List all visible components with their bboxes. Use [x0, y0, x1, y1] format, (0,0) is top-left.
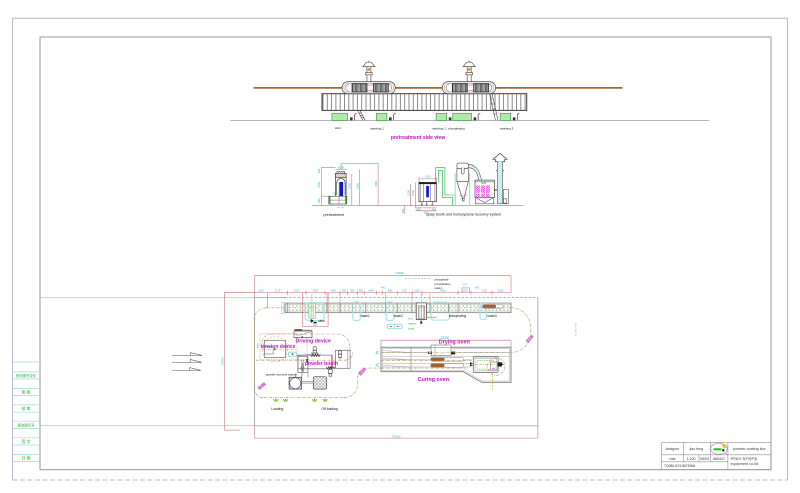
svg-text:2200: 2200 [498, 289, 504, 292]
svg-text:skim: skim [335, 126, 342, 130]
svg-text:400: 400 [313, 324, 318, 327]
svg-text:450: 450 [475, 286, 480, 289]
svg-text:900: 900 [359, 289, 364, 292]
svg-text:2175: 2175 [275, 289, 281, 292]
svg-text:powder coating line: powder coating line [733, 447, 766, 451]
svg-text:wash3: wash3 [487, 314, 496, 318]
svg-text:1250: 1250 [414, 289, 420, 292]
svg-text:24050: 24050 [395, 271, 404, 275]
svg-text:equipment co.ltd: equipment co.ltd [731, 462, 759, 466]
svg-text:1500: 1500 [411, 190, 415, 196]
svg-text:water: water [408, 322, 416, 326]
svg-text:washing 2: washing 2 [432, 126, 446, 130]
svg-text:400: 400 [401, 208, 405, 213]
svg-text:powder recovery system: powder recovery system [266, 373, 298, 377]
svg-text:spray booth and monocyclone re: spray booth and monocyclone recovery sys… [426, 212, 501, 216]
svg-text:900: 900 [388, 289, 393, 292]
svg-text:300: 300 [317, 168, 321, 173]
svg-text:xinyue spraying: xinyue spraying [731, 457, 757, 461]
svg-text:washing 1: washing 1 [370, 126, 384, 130]
svg-text:pretreatment: pretreatment [324, 213, 344, 217]
svg-text:3000: 3000 [313, 289, 319, 292]
svg-text:1:100: 1:100 [687, 457, 696, 461]
svg-text:tension device: tension device [261, 344, 296, 350]
svg-text:wash1: wash1 [361, 314, 370, 318]
svg-text:1250: 1250 [406, 190, 410, 196]
svg-text:skim: skim [318, 319, 325, 323]
svg-text:24050: 24050 [220, 357, 224, 366]
svg-text:rate: rate [669, 457, 675, 461]
svg-text:日 期: 日 期 [21, 454, 30, 460]
svg-text:更改图名号: 更改图名号 [18, 423, 36, 428]
svg-text:审 图: 审 图 [21, 389, 30, 395]
svg-text:T:0086-523-8875966: T:0086-523-8875966 [664, 464, 695, 468]
svg-text:7200: 7200 [374, 181, 378, 187]
svg-text:phosphating: phosphating [449, 314, 467, 318]
svg-text:签 字: 签 字 [21, 438, 30, 444]
svg-text:phosphating: phosphating [448, 126, 465, 130]
svg-text:Driving device: Driving device [295, 339, 331, 345]
svg-text:1445: 1445 [368, 289, 374, 292]
svg-text:06/04: 06/04 [700, 457, 709, 461]
svg-text:校 审: 校 审 [21, 405, 30, 411]
svg-text:75000: 75000 [392, 434, 401, 438]
svg-text:950: 950 [350, 289, 355, 292]
svg-text:1700: 1700 [294, 289, 300, 292]
svg-text:jiao feng: jiao feng [689, 447, 704, 451]
svg-text:hot: hot [408, 316, 412, 320]
svg-text:1500: 1500 [258, 289, 264, 292]
svg-text:pretreatment side view: pretreatment side view [391, 135, 445, 141]
svg-text:450: 450 [432, 207, 437, 211]
svg-text:修改图号变化: 修改图号变化 [16, 373, 37, 378]
svg-text:Drying oven: Drying oven [439, 339, 470, 345]
svg-text:450: 450 [416, 207, 421, 211]
svg-text:1950: 1950 [355, 183, 359, 189]
svg-text:600: 600 [317, 198, 321, 203]
svg-text:washing 3: washing 3 [500, 126, 514, 130]
svg-text:Loading: Loading [271, 407, 283, 411]
svg-text:3100: 3100 [425, 175, 431, 179]
svg-text:tank: tank [408, 327, 414, 331]
svg-text:1450: 1450 [330, 289, 336, 292]
svg-text:1250: 1250 [348, 183, 352, 189]
svg-text:Curing oven: Curing oven [418, 377, 449, 383]
svg-text:tower: tower [435, 286, 442, 290]
svg-text:Off loading: Off loading [321, 407, 337, 411]
svg-text:1000: 1000 [338, 165, 344, 169]
svg-text:1500: 1500 [462, 289, 468, 292]
svg-text:3750: 3750 [317, 182, 321, 188]
svg-text:900: 900 [342, 289, 347, 292]
svg-text:1700: 1700 [481, 289, 487, 292]
svg-text:170: 170 [463, 283, 468, 286]
svg-text:885437: 885437 [713, 457, 725, 461]
svg-text:1700: 1700 [401, 289, 407, 292]
svg-text:powder booth: powder booth [305, 361, 338, 367]
svg-text:designer: designer [666, 447, 681, 451]
svg-text:460: 460 [381, 286, 386, 289]
svg-text:wash2: wash2 [394, 314, 403, 318]
